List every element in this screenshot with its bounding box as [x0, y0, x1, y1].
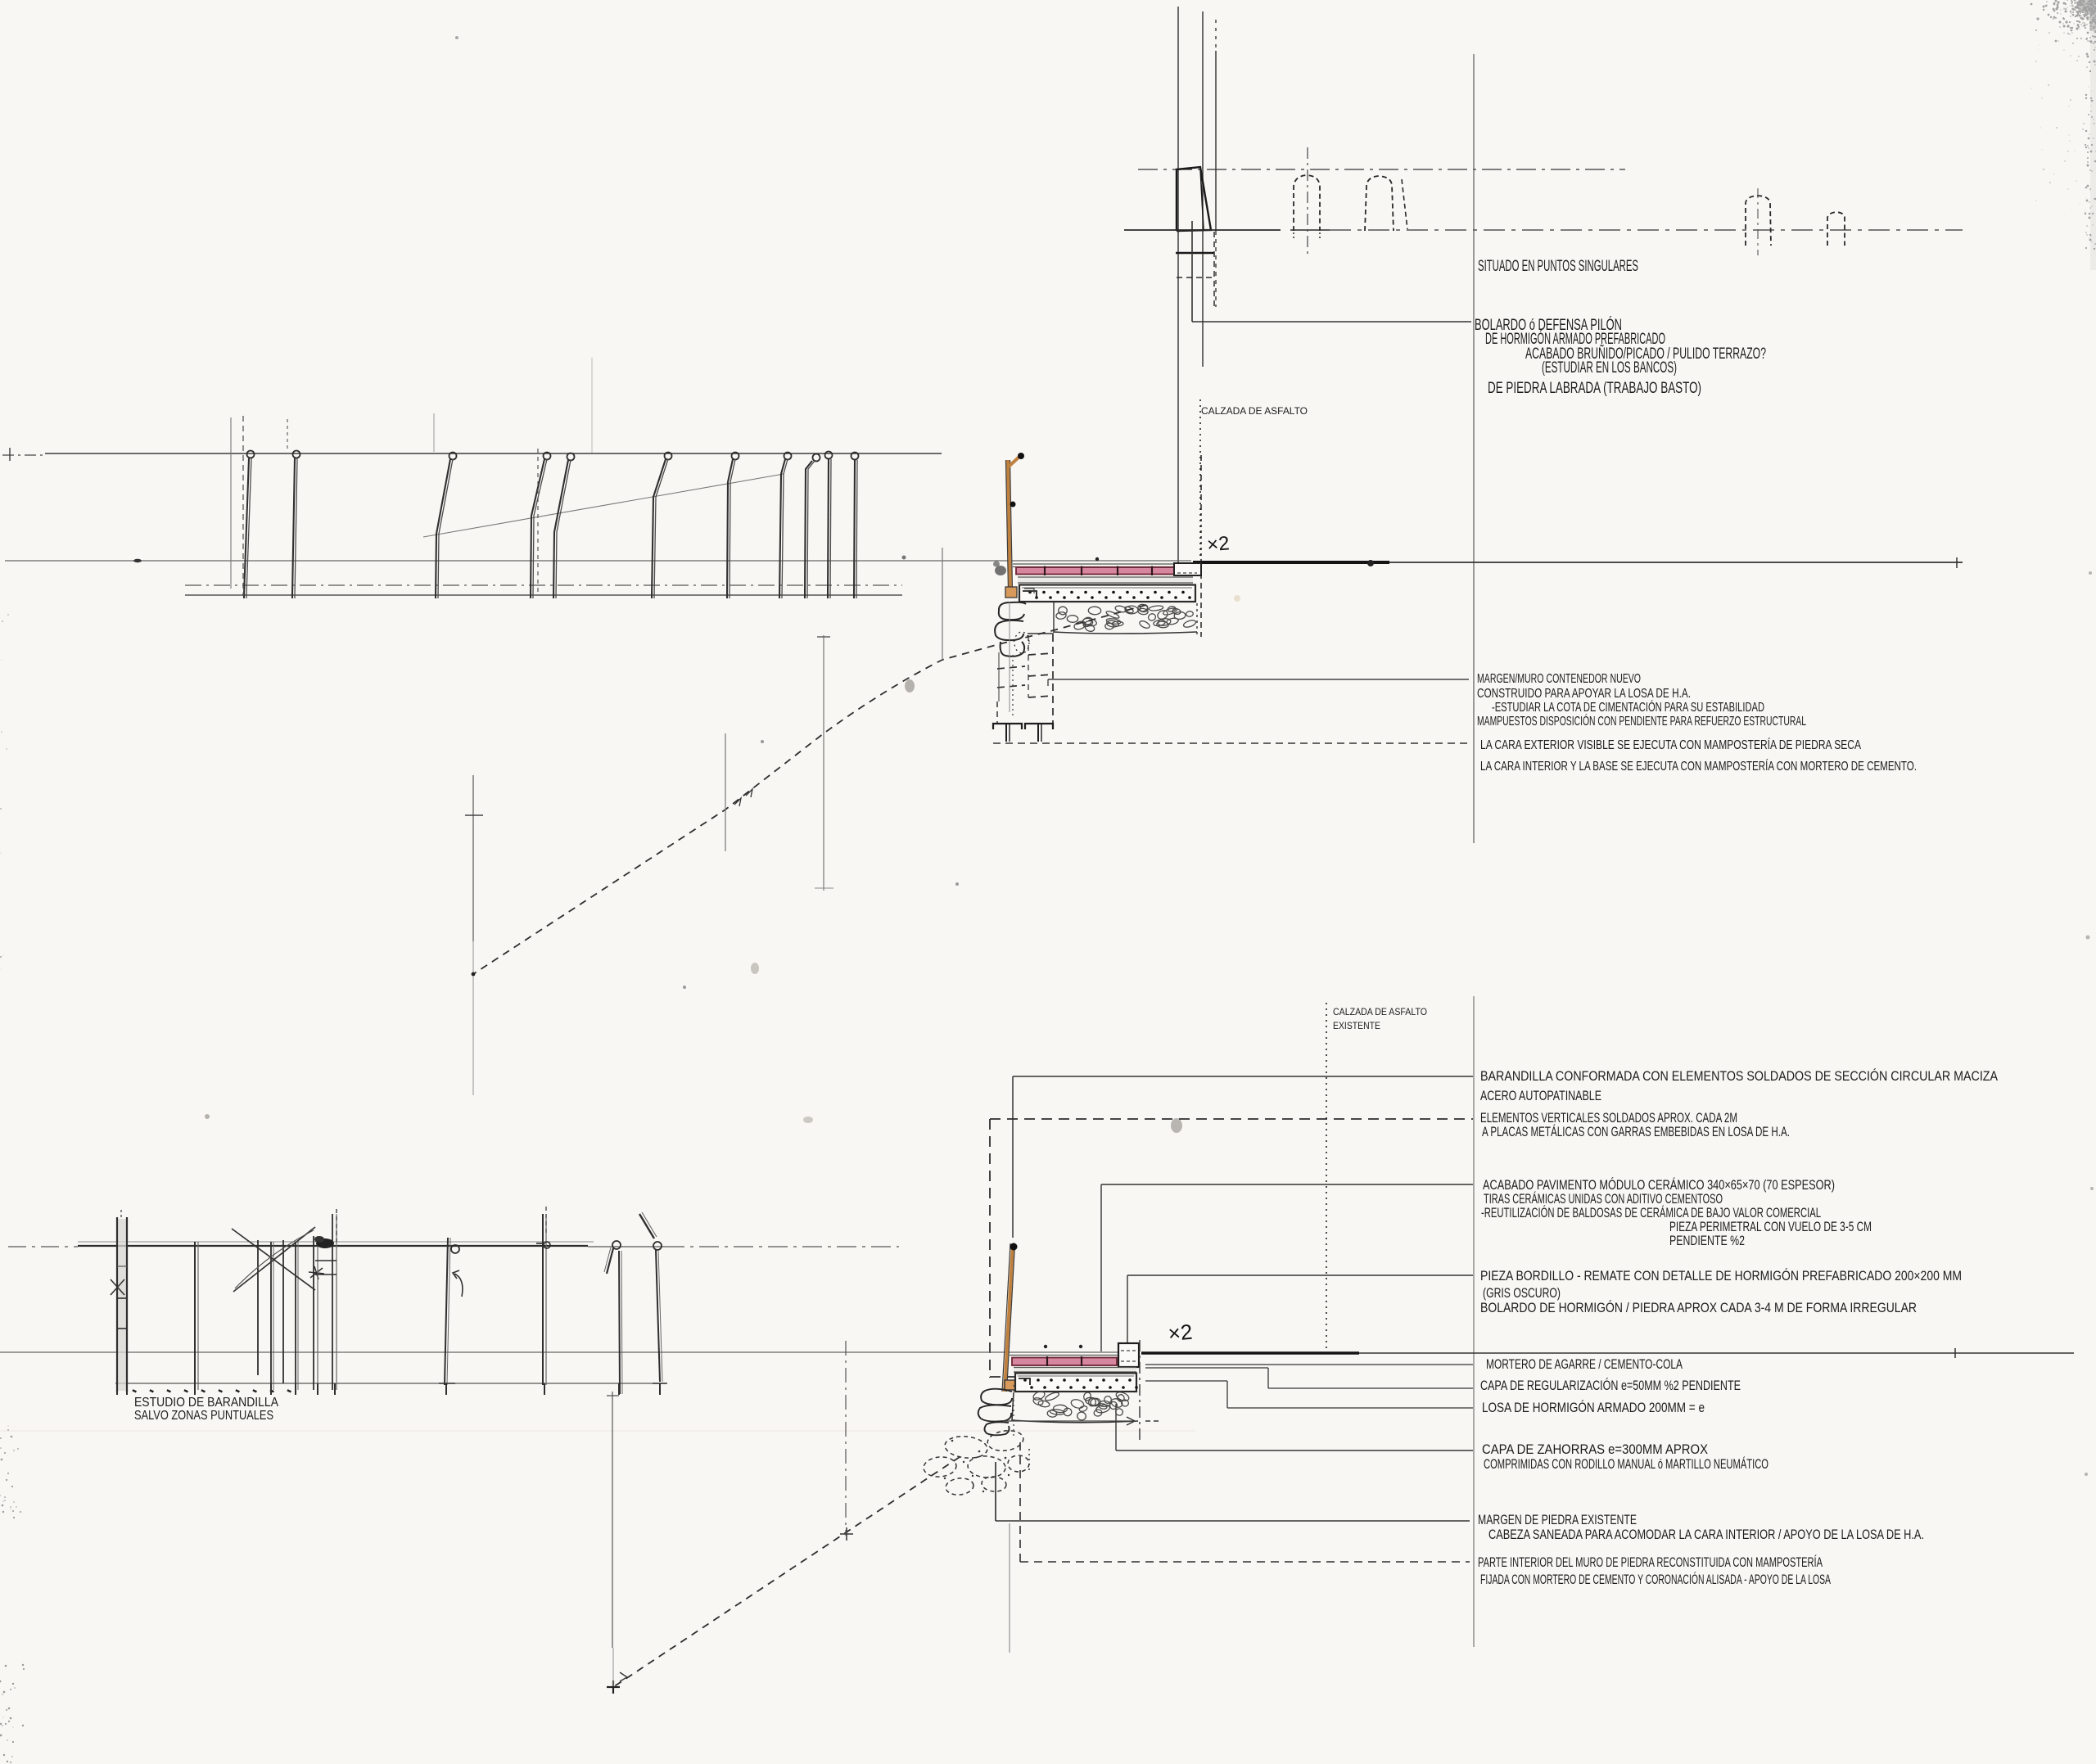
- svg-text:MARGEN/MURO CONTENEDOR NUEVO: MARGEN/MURO CONTENEDOR NUEVO: [1477, 672, 1641, 686]
- svg-text:(ESTUDIAR EN LOS BANCOS): (ESTUDIAR EN LOS BANCOS): [1542, 359, 1677, 377]
- svg-text:MORTERO DE AGARRE / CEMENTO-CO: MORTERO DE AGARRE / CEMENTO-COLA: [1486, 1356, 1683, 1372]
- svg-text:SITUADO EN PUNTOS SINGULARES: SITUADO EN PUNTOS SINGULARES: [1478, 258, 1638, 275]
- svg-text:×2: ×2: [1167, 1320, 1193, 1346]
- svg-text:CONSTRUIDO PARA APOYAR LA LOSA: CONSTRUIDO PARA APOYAR LA LOSA DE H.A.: [1477, 687, 1691, 701]
- svg-text:(GRIS OSCURO): (GRIS OSCURO): [1483, 1285, 1561, 1301]
- svg-text:×2: ×2: [1206, 532, 1231, 556]
- svg-text:-ESTUDIAR LA COTA DE CIMENTACI: -ESTUDIAR LA COTA DE CIMENTACIÓN PARA SU…: [1492, 699, 1764, 715]
- svg-text:LOSA DE HORMIGÓN ARMADO 200MM: LOSA DE HORMIGÓN ARMADO 200MM = e: [1482, 1400, 1705, 1415]
- svg-text:MARGEN DE PIEDRA EXISTENTE: MARGEN DE PIEDRA EXISTENTE: [1478, 1512, 1637, 1527]
- svg-text:SALVO ZONAS PUNTUALES: SALVO ZONAS PUNTUALES: [134, 1409, 273, 1423]
- svg-text:LA CARA EXTERIOR VISIBLE SE EJ: LA CARA EXTERIOR VISIBLE SE EJECUTA CON …: [1480, 737, 1861, 752]
- svg-text:CALZADA DE ASFALTO: CALZADA DE ASFALTO: [1201, 405, 1308, 417]
- svg-text:LA CARA INTERIOR Y LA BASE SE: LA CARA INTERIOR Y LA BASE SE EJECUTA CO…: [1480, 758, 1917, 774]
- svg-text:FIJADA CON MORTERO DE CEMENTO: FIJADA CON MORTERO DE CEMENTO Y CORONACI…: [1480, 1572, 1831, 1587]
- svg-text:PENDIENTE %2: PENDIENTE %2: [1669, 1233, 1745, 1248]
- svg-text:BARANDILLA CONFORMADA CON ELEM: BARANDILLA CONFORMADA CON ELEMENTOS SOLD…: [1480, 1068, 1999, 1084]
- svg-text:DE PIEDRA LABRADA (TRABAJO BA: DE PIEDRA LABRADA (TRABAJO BASTO): [1488, 380, 1701, 397]
- svg-text:ACERO AUTOPATINABLE: ACERO AUTOPATINABLE: [1480, 1088, 1601, 1103]
- svg-text:EXISTENTE: EXISTENTE: [1333, 1020, 1380, 1031]
- svg-text:A PLACAS METÁLICAS CON GARRAS: A PLACAS METÁLICAS CON GARRAS EMBEBIDAS …: [1482, 1124, 1790, 1139]
- svg-text:PARTE INTERIOR DEL MURO DE PIE: PARTE INTERIOR DEL MURO DE PIEDRA RECONS…: [1478, 1554, 1823, 1570]
- svg-text:PIEZA BORDILLO - REMATE CON DE: PIEZA BORDILLO - REMATE CON DETALLE DE H…: [1480, 1268, 1962, 1284]
- svg-text:CAPA DE REGULARIZACIÓN e=50M: CAPA DE REGULARIZACIÓN e=50MM %2 PENDIEN…: [1480, 1378, 1741, 1393]
- svg-text:BOLARDO DE HORMIGÓN / PIEDRA A: BOLARDO DE HORMIGÓN / PIEDRA APROX CADA …: [1480, 1300, 1917, 1315]
- svg-text:COMPRIMIDAS CON RODILLO MANUAL: COMPRIMIDAS CON RODILLO MANUAL ó MARTILL…: [1484, 1456, 1768, 1472]
- svg-text:CALZADA DE ASFALTO: CALZADA DE ASFALTO: [1333, 1006, 1427, 1017]
- svg-text:CAPA DE ZAHORRAS e=300MM APRO: CAPA DE ZAHORRAS e=300MM APROX: [1482, 1441, 1708, 1457]
- svg-text:CABEZA SANEADA PARA ACOMODAR L: CABEZA SANEADA PARA ACOMODAR LA CARA INT…: [1488, 1527, 1924, 1542]
- svg-text:ESTUDIO DE BARANDILLA: ESTUDIO DE BARANDILLA: [134, 1396, 278, 1410]
- svg-text:MAMPUESTOS DISPOSICIÓN CON PEN: MAMPUESTOS DISPOSICIÓN CON PENDIENTE PAR…: [1477, 713, 1806, 729]
